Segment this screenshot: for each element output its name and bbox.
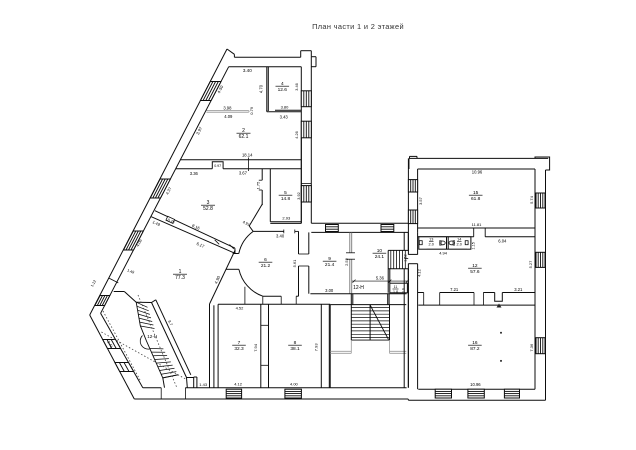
svg-text:21.4: 21.4 [325, 262, 335, 268]
svg-text:7.93: 7.93 [313, 343, 318, 352]
svg-text:21.2: 21.2 [261, 263, 271, 269]
svg-text:87.2: 87.2 [470, 346, 480, 352]
svg-text:2.0: 2.0 [457, 243, 462, 247]
svg-text:77.3: 77.3 [175, 275, 185, 281]
svg-text:4.12: 4.12 [416, 268, 421, 277]
svg-text:0.79: 0.79 [249, 106, 254, 115]
svg-text:24.1: 24.1 [375, 254, 385, 260]
svg-text:1.52: 1.52 [403, 254, 407, 261]
svg-text:6.04: 6.04 [498, 238, 507, 243]
svg-text:5.61: 5.61 [292, 259, 297, 268]
svg-text:3.80: 3.80 [281, 105, 290, 110]
svg-text:1.75: 1.75 [255, 181, 260, 190]
svg-text:61.8: 61.8 [471, 196, 481, 202]
svg-text:4.12: 4.12 [234, 381, 243, 386]
svg-text:38.1: 38.1 [290, 346, 300, 352]
svg-text:5.74: 5.74 [529, 195, 534, 204]
svg-text:14.8: 14.8 [281, 196, 291, 202]
svg-text:3.46: 3.46 [295, 83, 299, 90]
svg-text:10.96: 10.96 [472, 170, 483, 175]
svg-text:3.36: 3.36 [190, 171, 199, 176]
svg-text:14: 14 [457, 238, 461, 242]
svg-text:5.27: 5.27 [528, 260, 533, 269]
svg-text:2.52: 2.52 [344, 257, 349, 266]
svg-text:4.26: 4.26 [295, 131, 299, 138]
svg-text:3.40: 3.40 [243, 68, 252, 73]
svg-text:32.3: 32.3 [234, 346, 244, 352]
svg-text:3.00: 3.00 [325, 288, 334, 293]
svg-text:4.09: 4.09 [224, 114, 233, 119]
svg-text:0.97: 0.97 [214, 164, 221, 168]
svg-text:1.43: 1.43 [199, 382, 208, 387]
svg-text:1.8: 1.8 [393, 290, 398, 294]
svg-text:7.21: 7.21 [450, 287, 459, 292]
svg-text:11: 11 [394, 285, 398, 289]
svg-text:10.96: 10.96 [470, 382, 481, 387]
svg-text:11.81: 11.81 [472, 222, 482, 227]
svg-text:2.0: 2.0 [429, 243, 434, 247]
svg-text:4.70: 4.70 [259, 84, 264, 93]
svg-text:12.6: 12.6 [278, 87, 288, 93]
svg-text:План части 1 и 2 этажей: План части 1 и 2 этажей [312, 22, 404, 31]
svg-text:18.14: 18.14 [242, 153, 253, 158]
svg-text:4.00: 4.00 [290, 381, 299, 386]
svg-text:3.57: 3.57 [418, 196, 423, 205]
svg-text:12-Н: 12-Н [353, 285, 364, 291]
svg-text:3.40: 3.40 [276, 233, 285, 238]
svg-text:7.94: 7.94 [253, 343, 258, 352]
svg-text:4.52: 4.52 [236, 306, 245, 311]
svg-text:4.94: 4.94 [439, 251, 448, 256]
svg-text:2.93: 2.93 [282, 216, 291, 221]
svg-text:13: 13 [429, 238, 433, 242]
svg-text:7.36: 7.36 [529, 343, 534, 352]
svg-text:57.6: 57.6 [470, 269, 480, 275]
svg-text:5.36: 5.36 [376, 276, 385, 281]
svg-text:52.8: 52.8 [203, 206, 213, 212]
svg-text:3.92: 3.92 [297, 192, 301, 199]
svg-text:1.15: 1.15 [472, 242, 476, 249]
svg-text:3.98: 3.98 [223, 105, 232, 110]
svg-text:62.1: 62.1 [239, 134, 249, 140]
svg-text:3.43: 3.43 [280, 114, 289, 119]
svg-text:3.67: 3.67 [239, 171, 248, 176]
svg-text:3.21: 3.21 [514, 287, 523, 292]
svg-text:12-Н: 12-Н [147, 334, 157, 339]
